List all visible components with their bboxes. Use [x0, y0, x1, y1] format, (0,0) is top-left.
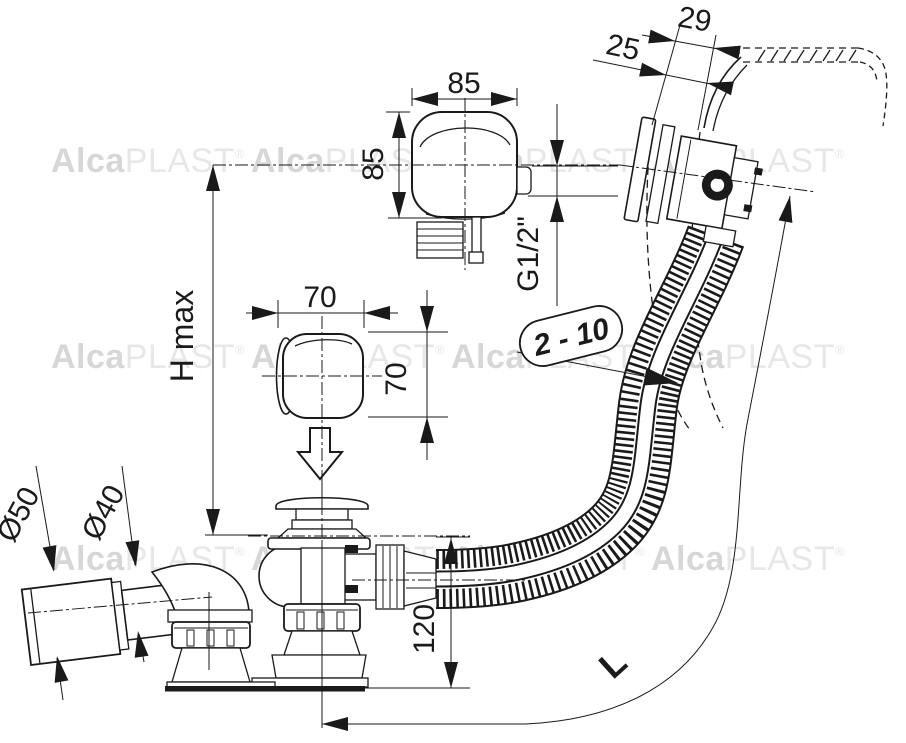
elbow-lock-nut [172, 622, 250, 648]
threaded-stub [417, 222, 463, 258]
bath-rim [743, 48, 887, 126]
watermark-text: AlcaPLAST® [51, 142, 245, 180]
height-max-label: H max [164, 290, 200, 382]
top-knob-width-label: 85 [447, 67, 480, 100]
outlet-outer-dia-label: Ø50 [0, 482, 46, 548]
drain-height-label: 120 [408, 604, 441, 654]
thread-size-label: G1/2" [512, 216, 545, 292]
watermark-text: AlcaPLAST® [51, 338, 245, 376]
hose-length-label: L [591, 641, 635, 686]
outlet-inner-dia-label: Ø40 [76, 480, 132, 546]
mid-knob-width-label: 70 [303, 281, 336, 314]
mid-knob-height-label: 70 [380, 362, 413, 395]
watermark-text: AlcaPLAST® [651, 540, 845, 578]
overflow-offset-label: 25 [603, 28, 643, 67]
technical-drawing: AlcaPLAST®AlcaPLAST®AlcaPLAST®AlcaPLAST®… [0, 0, 906, 743]
top-knob-height-label: 85 [357, 147, 390, 180]
rim-hatch [758, 50, 856, 61]
pull-rod [469, 217, 483, 263]
technical-drawing-page: AlcaPLAST®AlcaPLAST®AlcaPLAST®AlcaPLAST®… [0, 0, 906, 743]
side-outlet [517, 167, 531, 194]
down-arrow-icon [298, 428, 342, 479]
corrugated-hose [436, 236, 716, 579]
dimension-overflow-depth: 29 [642, 0, 741, 130]
overflow-depth-label: 29 [675, 0, 714, 38]
base-plate [165, 686, 365, 692]
pipe-socket [22, 579, 121, 665]
dimension-thread-size: G1/2" [512, 104, 618, 306]
